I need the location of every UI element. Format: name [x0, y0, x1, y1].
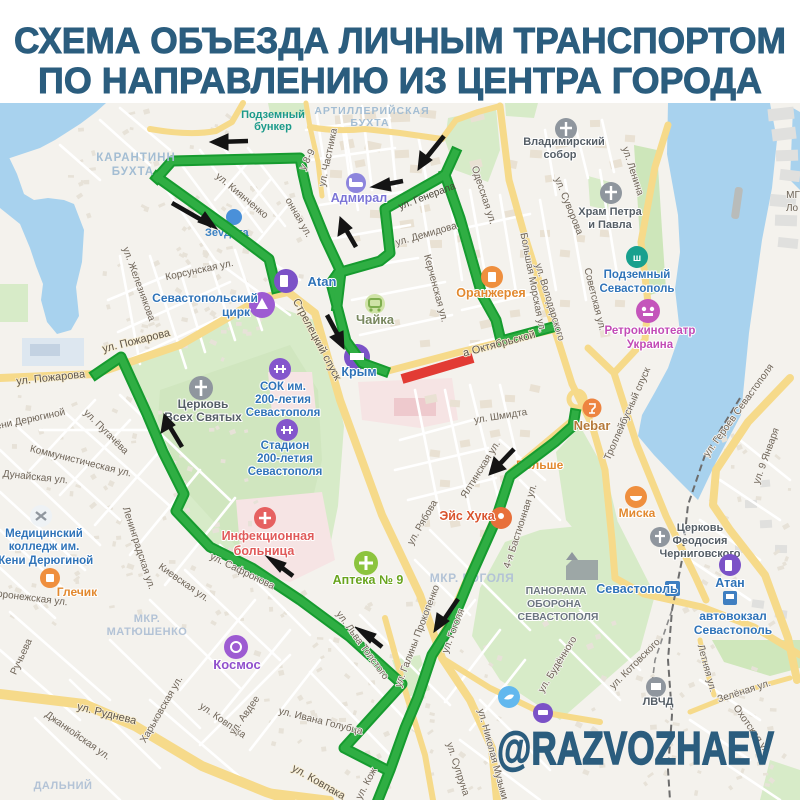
- svg-text:СЕВАСТОПОЛЯ: СЕВАСТОПОЛЯ: [518, 611, 599, 623]
- svg-text:Инфекционная: Инфекционная: [222, 529, 315, 543]
- svg-text:Atan: Atan: [308, 274, 337, 289]
- svg-text:СХЕМА ОБЪЕЗДА ЛИЧНЫМ ТРАНСПОРТ: СХЕМА ОБЪЕЗДА ЛИЧНЫМ ТРАНСПОРТОМ: [14, 20, 786, 61]
- svg-text:АРТИЛЛЕРИЙСКАЯ: АРТИЛЛЕРИЙСКАЯ: [314, 104, 429, 117]
- svg-text:Адмирал: Адмирал: [331, 191, 387, 205]
- svg-text:и Павла: и Павла: [588, 219, 632, 231]
- svg-text:цирк: цирк: [222, 305, 251, 319]
- svg-text:Оранжерея: Оранжерея: [456, 286, 525, 300]
- svg-text:Медицинский: Медицинский: [5, 528, 83, 540]
- svg-text:Миска: Миска: [619, 506, 656, 520]
- svg-text:ш: ш: [633, 253, 641, 264]
- svg-text:Севастополь: Севастополь: [596, 582, 678, 596]
- svg-text:Всех Святых: Всех Святых: [164, 410, 242, 424]
- svg-text:КАРАНТИНН: КАРАНТИНН: [96, 152, 176, 164]
- svg-text:Атан: Атан: [715, 576, 745, 590]
- svg-text:Подземный: Подземный: [604, 269, 671, 281]
- svg-text:Глечик: Глечик: [57, 585, 98, 599]
- svg-text:автовокзал: автовокзал: [699, 609, 767, 623]
- svg-text:МАТЮШЕНКО: МАТЮШЕНКО: [107, 626, 188, 638]
- svg-text:ОБОРОНА: ОБОРОНА: [527, 598, 581, 610]
- svg-text:собор: собор: [543, 149, 576, 161]
- svg-text:Подземный: Подземный: [241, 109, 305, 121]
- svg-text:Севастополя: Севастополя: [246, 407, 321, 419]
- svg-text:Эйс Хука: Эйс Хука: [439, 509, 495, 523]
- svg-text:Чайка: Чайка: [356, 312, 395, 327]
- svg-text:МКР.: МКР.: [134, 613, 161, 625]
- svg-text:Космос: Космос: [213, 657, 260, 672]
- svg-text:200-летия: 200-летия: [255, 394, 311, 406]
- svg-text:Владимирский: Владимирский: [523, 136, 605, 148]
- svg-text:ПАНОРАМА: ПАНОРАМА: [526, 585, 587, 597]
- svg-text:200-летия: 200-летия: [257, 453, 313, 465]
- svg-text:Феодосия: Феодосия: [673, 535, 728, 547]
- svg-text:БУХТА: БУХТА: [350, 117, 389, 129]
- svg-text:Храм Петра: Храм Петра: [578, 206, 642, 218]
- svg-text:больница: больница: [234, 544, 296, 558]
- svg-text:Ретрокинотеатр: Ретрокинотеатр: [605, 325, 696, 337]
- svg-text:Севастопольский: Севастопольский: [152, 291, 258, 305]
- svg-text:Севастополя: Севастополя: [248, 466, 323, 478]
- svg-text:ПО НАПРАВЛЕНИЮ ИЗ ЦЕНТРА ГОРОД: ПО НАПРАВЛЕНИЮ ИЗ ЦЕНТРА ГОРОДА: [38, 60, 762, 101]
- svg-text:Украина: Украина: [627, 339, 674, 351]
- svg-text:бункер: бункер: [254, 121, 292, 133]
- svg-text:ДАЛЬНИЙ: ДАЛЬНИЙ: [34, 779, 93, 792]
- svg-text:Жени Дерюгиной: Жени Дерюгиной: [0, 555, 93, 567]
- svg-text:СОК им.: СОК им.: [260, 381, 306, 393]
- svg-text:Ло: Ло: [786, 203, 799, 214]
- svg-text:Церковь: Церковь: [178, 397, 229, 411]
- svg-text:колледж им.: колледж им.: [9, 541, 80, 553]
- svg-text:Крым: Крым: [341, 365, 376, 379]
- svg-text:Nebar: Nebar: [574, 418, 611, 433]
- svg-text:Севастополь: Севастополь: [694, 623, 772, 637]
- svg-text:БУХТА: БУХТА: [112, 166, 154, 178]
- svg-text:Стадион: Стадион: [261, 440, 310, 452]
- svg-text:ЛВЧД: ЛВЧД: [643, 696, 674, 708]
- svg-text:МГ: МГ: [786, 190, 800, 201]
- svg-text:Севастополь: Севастополь: [600, 283, 675, 295]
- svg-text:Церковь: Церковь: [677, 522, 724, 534]
- svg-text:@RAZVOZHAEV: @RAZVOZHAEV: [497, 722, 774, 774]
- svg-text:Аптека № 9: Аптека № 9: [333, 573, 404, 587]
